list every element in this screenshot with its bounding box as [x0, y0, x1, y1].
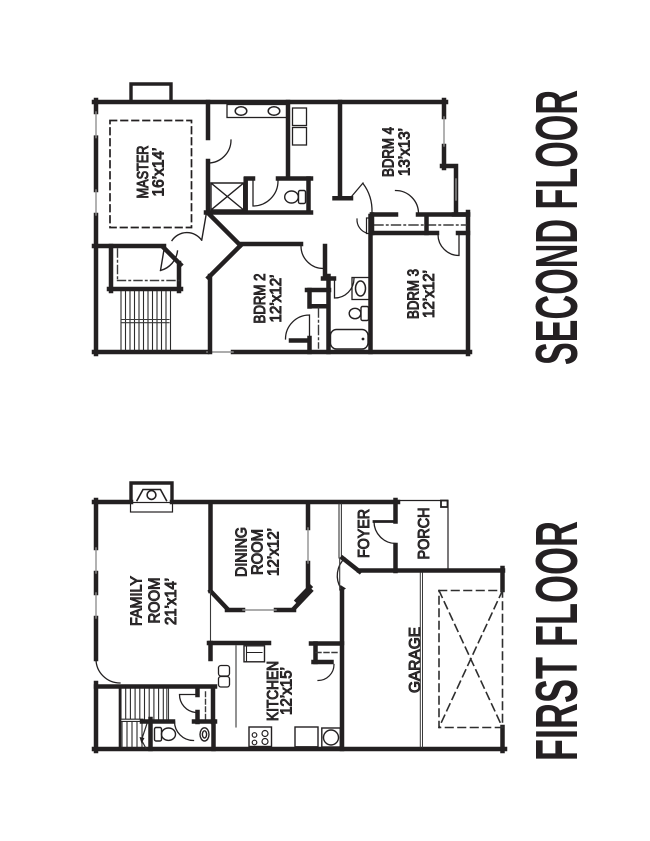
svg-text:BDRM 3: BDRM 3 — [406, 269, 423, 319]
svg-text:12’x12’: 12’x12’ — [268, 275, 285, 323]
svg-text:16’x14’: 16’x14’ — [151, 148, 168, 197]
svg-text:ROOM: ROOM — [250, 529, 267, 575]
svg-text:21’x14’: 21’x14’ — [163, 578, 180, 625]
svg-text:12’x12’: 12’x12’ — [266, 528, 283, 576]
svg-text:GARAGE: GARAGE — [407, 627, 424, 693]
svg-text:FAMILY: FAMILY — [129, 576, 146, 626]
svg-text:FIRST FLOOR: FIRST FLOOR — [523, 521, 590, 761]
svg-text:MASTER: MASTER — [135, 146, 152, 199]
svg-text:ROOM: ROOM — [147, 578, 164, 624]
svg-text:SECOND FLOOR: SECOND FLOOR — [523, 90, 590, 365]
svg-text:13’x13’: 13’x13’ — [397, 128, 414, 176]
svg-text:12’x12’: 12’x12’ — [421, 270, 438, 318]
svg-text:FOYER: FOYER — [356, 509, 373, 558]
svg-text:PORCH: PORCH — [416, 508, 433, 560]
svg-text:BDRM 2: BDRM 2 — [252, 274, 269, 324]
svg-text:12’x15’: 12’x15’ — [279, 667, 296, 715]
svg-text:BDRM 4: BDRM 4 — [381, 127, 398, 177]
svg-text:DINING: DINING — [234, 527, 251, 577]
